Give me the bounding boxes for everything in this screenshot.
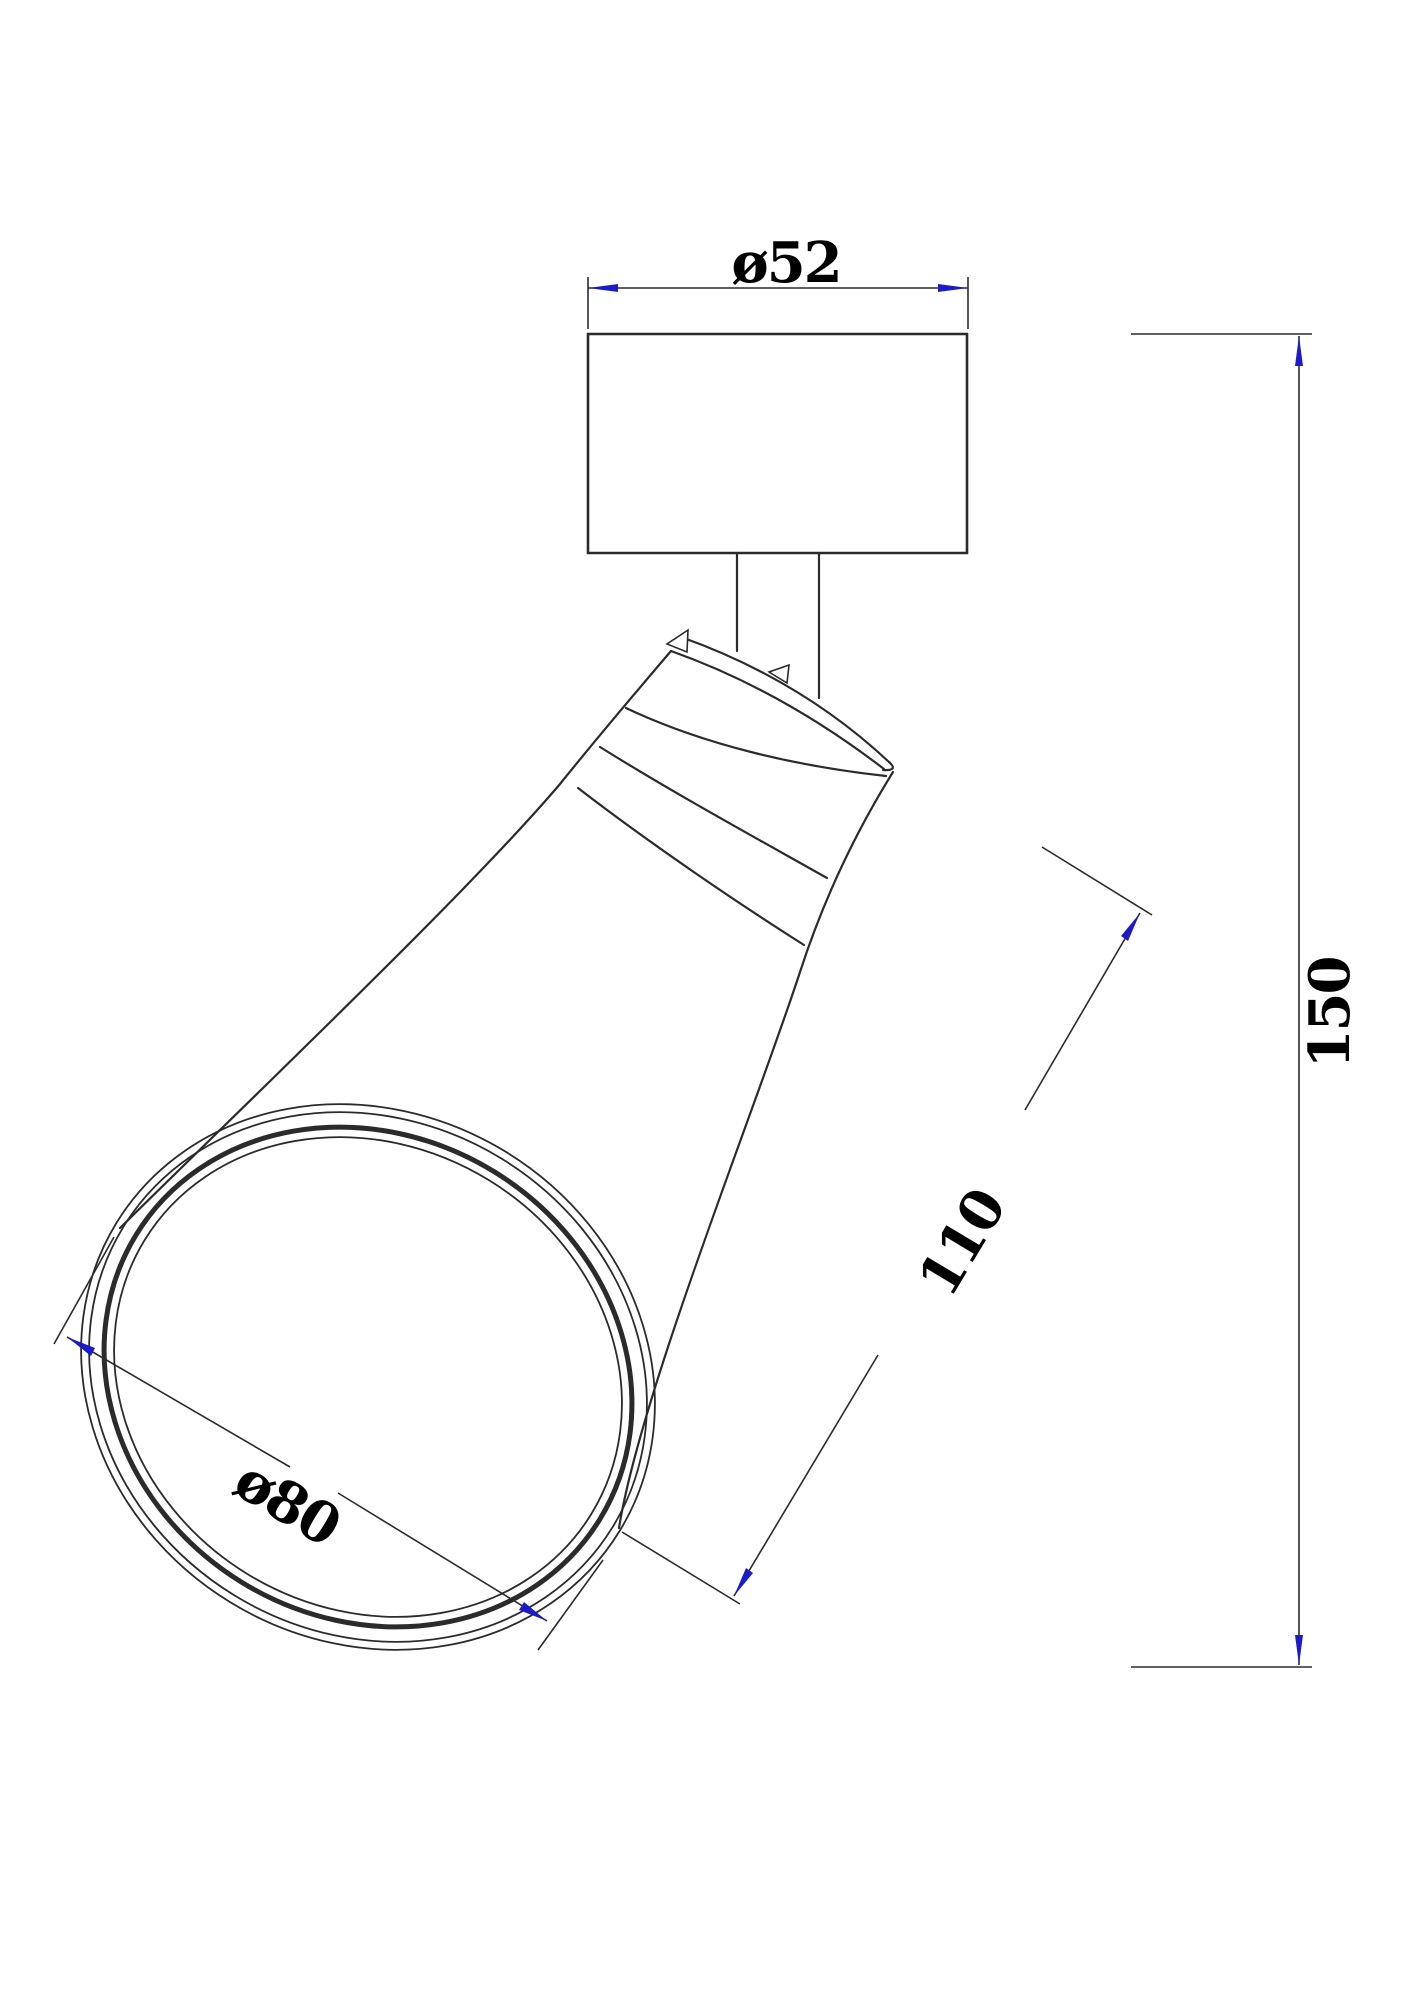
dim-label-mount-diameter: ø52: [731, 230, 840, 296]
rim-outer-edge: [0, 998, 757, 1756]
dim-shade-length: [622, 847, 1152, 1604]
cone-right-silhouette: [619, 772, 893, 1528]
dim110-extension-bottom: [622, 1532, 740, 1604]
shade-opening-rim: [0, 998, 757, 1756]
cap-top-edge: [681, 637, 889, 762]
dim-opening-diameter: [54, 1237, 603, 1650]
rim-inner-edge: [24, 1043, 712, 1711]
dim110-line-lower: [734, 1355, 878, 1596]
ceiling-mount-box: [588, 334, 967, 553]
dim110-extension-top: [1042, 847, 1152, 915]
dim-overall-height: [1131, 334, 1312, 1667]
dim52-arrow-left: [588, 284, 618, 292]
dim80-line-lower: [338, 1493, 547, 1621]
rim-middle-edge: [0, 1009, 746, 1745]
rim-shadow-ring: [10, 1029, 726, 1724]
dim52-arrow-right: [938, 284, 968, 292]
dim150-arrow-top: [1295, 336, 1303, 366]
dim110-line-upper: [1025, 913, 1140, 1110]
cap-notch-left: [667, 630, 688, 652]
dim110-arrow-top: [1121, 913, 1140, 941]
dim110-arrow-bottom: [734, 1568, 753, 1596]
neck-band-lower: [578, 788, 804, 945]
drawing-canvas: ø52 150 110 ø80: [0, 0, 1414, 2000]
neck-band-upper: [600, 747, 827, 878]
mount-box-outline: [588, 334, 967, 553]
cone-left-silhouette: [120, 651, 671, 1228]
lamp-shade: [0, 630, 893, 1756]
dim150-arrow-bottom: [1295, 1635, 1303, 1665]
dim-label-overall-height: 150: [1297, 958, 1363, 1069]
fixture-line-art: [0, 0, 1414, 2000]
